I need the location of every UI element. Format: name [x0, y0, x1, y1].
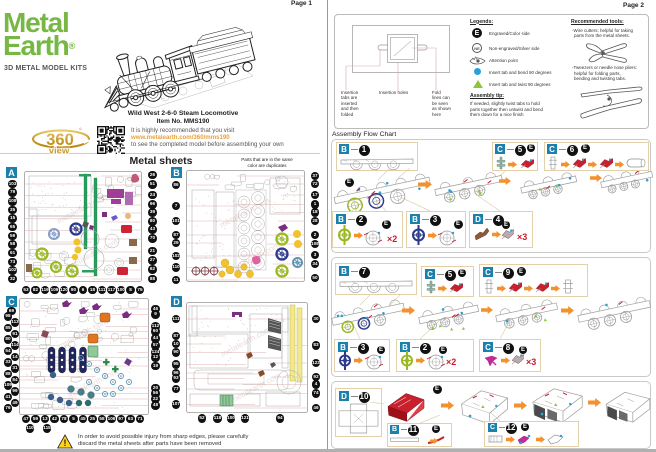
svg-text:!: ! [64, 438, 67, 448]
svg-text:view: view [49, 146, 70, 157]
svg-text:°: ° [79, 127, 82, 135]
